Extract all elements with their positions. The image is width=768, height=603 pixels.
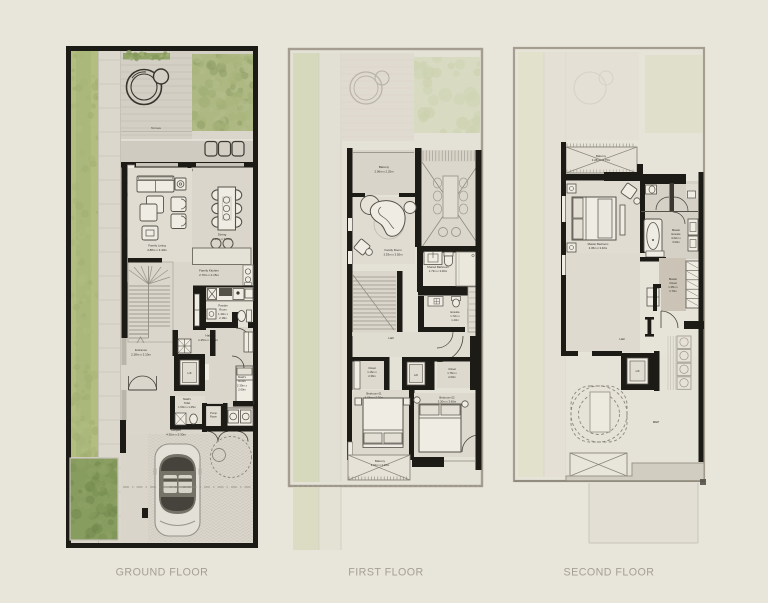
svg-text:2.06m x 2.25m: 2.06m x 2.25m	[374, 169, 394, 173]
svg-text:Lift: Lift	[636, 369, 640, 373]
svg-text:2.36m: 2.36m	[368, 374, 376, 378]
svg-text:2.70m: 2.70m	[669, 289, 677, 293]
svg-text:2.70m x 2.15m: 2.70m x 2.15m	[199, 273, 219, 277]
svg-text:MEP: MEP	[653, 420, 660, 424]
svg-text:SECOND FLOOR: SECOND FLOOR	[564, 567, 655, 579]
svg-text:Family Kitchen: Family Kitchen	[199, 269, 219, 273]
svg-text:Pump: Pump	[210, 411, 217, 415]
svg-text:Lift: Lift	[414, 373, 418, 377]
svg-text:3.20m x 3.65m: 3.20m x 3.65m	[438, 400, 457, 404]
svg-text:Master: Master	[672, 228, 680, 232]
svg-text:1.72m x: 1.72m x	[450, 314, 460, 318]
svg-text:1.35m x: 1.35m x	[668, 285, 678, 289]
svg-text:2.00m: 2.00m	[448, 375, 456, 379]
svg-text:1.73m x 3.00m: 1.73m x 3.00m	[429, 269, 448, 273]
svg-text:Ensuite: Ensuite	[672, 232, 681, 236]
svg-text:3.53m x 3.55m: 3.53m x 3.55m	[383, 252, 403, 256]
svg-text:Closet: Closet	[448, 367, 456, 371]
svg-text:FIRST FLOOR: FIRST FLOOR	[348, 567, 423, 579]
svg-text:2.60m: 2.60m	[238, 388, 246, 392]
svg-text:Family Living: Family Living	[148, 244, 166, 248]
svg-text:2.18m: 2.18m	[219, 316, 227, 320]
svg-text:Closet: Closet	[669, 281, 677, 285]
svg-text:4.30m x 5.30m: 4.30m x 5.30m	[166, 432, 186, 436]
svg-text:1.50m x 1.25m: 1.50m x 1.25m	[178, 405, 197, 409]
svg-text:3.10m x 2.00m: 3.10m x 2.00m	[371, 463, 390, 467]
svg-text:3.00m: 3.00m	[672, 240, 680, 244]
svg-text:1.76m x: 1.76m x	[447, 371, 457, 375]
svg-text:Carport: Carport	[171, 428, 181, 432]
svg-text:Entrance: Entrance	[135, 348, 147, 352]
svg-text:GROUND FLOOR: GROUND FLOOR	[116, 567, 209, 579]
svg-text:3.28m x 2.75m: 3.28m x 2.75m	[592, 158, 611, 162]
svg-text:4.88m x 3.40m: 4.88m x 3.40m	[147, 248, 167, 252]
svg-text:Lift: Lift	[187, 371, 191, 375]
svg-text:Terrace: Terrace	[151, 126, 161, 130]
svg-text:1.16m x: 1.16m x	[367, 370, 377, 374]
svg-text:Ensuite: Ensuite	[451, 310, 460, 314]
svg-text:Master: Master	[669, 277, 677, 281]
svg-text:Hall: Hall	[619, 337, 625, 341]
svg-text:2.28m x 2.10m: 2.28m x 2.10m	[131, 352, 151, 356]
svg-text:3.62m x: 3.62m x	[671, 236, 681, 240]
svg-text:Toilet: Toilet	[184, 401, 191, 405]
svg-text:Closet: Closet	[368, 366, 376, 370]
svg-text:1.43m: 1.43m	[451, 318, 459, 322]
svg-text:Room: Room	[210, 415, 217, 419]
svg-text:Maid's: Maid's	[183, 397, 191, 401]
svg-text:Dining: Dining	[218, 233, 227, 237]
svg-text:4.05m x 3.40m: 4.05m x 3.40m	[589, 246, 608, 250]
svg-text:Hall: Hall	[388, 336, 394, 340]
